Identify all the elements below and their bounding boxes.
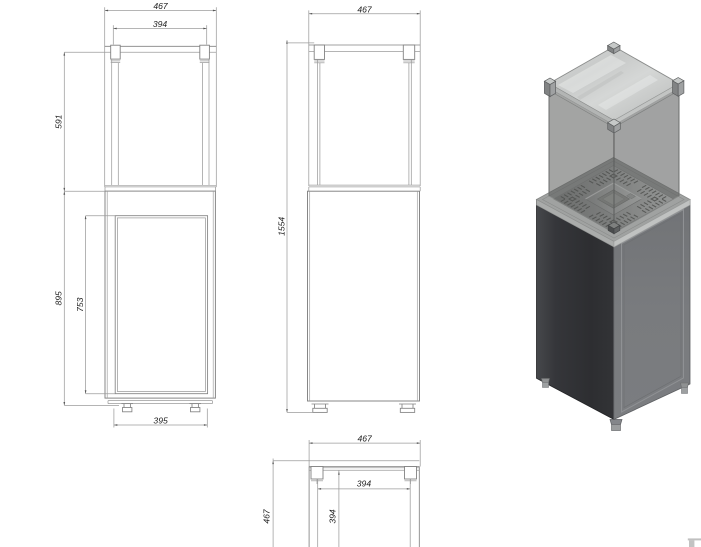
svg-text:394: 394	[327, 509, 337, 524]
svg-text:394: 394	[153, 19, 168, 29]
svg-text:591: 591	[54, 114, 64, 129]
svg-text:394: 394	[357, 478, 372, 488]
svg-text:395: 395	[153, 416, 168, 426]
svg-text:467: 467	[262, 508, 272, 524]
svg-text:753: 753	[75, 297, 85, 312]
svg-text:467: 467	[357, 4, 373, 14]
svg-text:895: 895	[54, 291, 64, 306]
svg-text:1554: 1554	[276, 217, 286, 236]
svg-text:467: 467	[357, 434, 373, 444]
svg-text:467: 467	[153, 1, 169, 11]
